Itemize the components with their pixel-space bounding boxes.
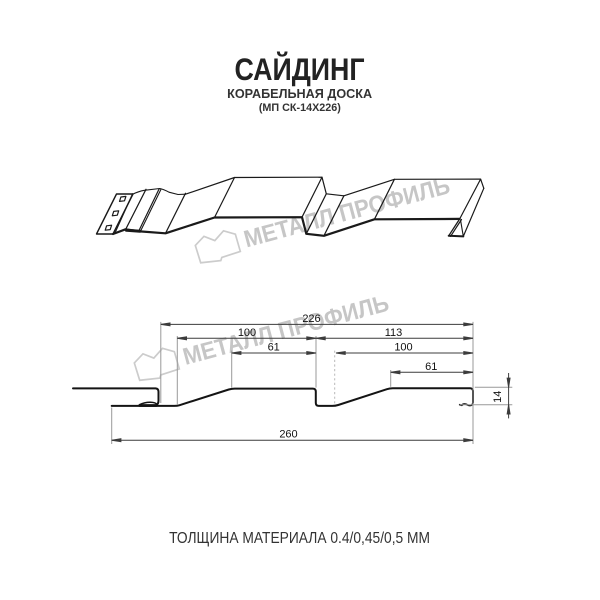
svg-text:100: 100 — [394, 342, 412, 354]
svg-text:МЕТАЛЛ ПРОФИЛЬ: МЕТАЛЛ ПРОФИЛЬ — [180, 290, 392, 371]
svg-text:226: 226 — [302, 313, 320, 325]
svg-text:14: 14 — [492, 391, 504, 403]
svg-text:260: 260 — [279, 429, 297, 441]
svg-text:61: 61 — [268, 342, 280, 354]
svg-text:61: 61 — [425, 361, 437, 373]
svg-text:113: 113 — [385, 327, 403, 339]
svg-text:МЕТАЛЛ ПРОФИЛЬ: МЕТАЛЛ ПРОФИЛЬ — [241, 172, 453, 253]
svg-text:100: 100 — [238, 327, 256, 339]
